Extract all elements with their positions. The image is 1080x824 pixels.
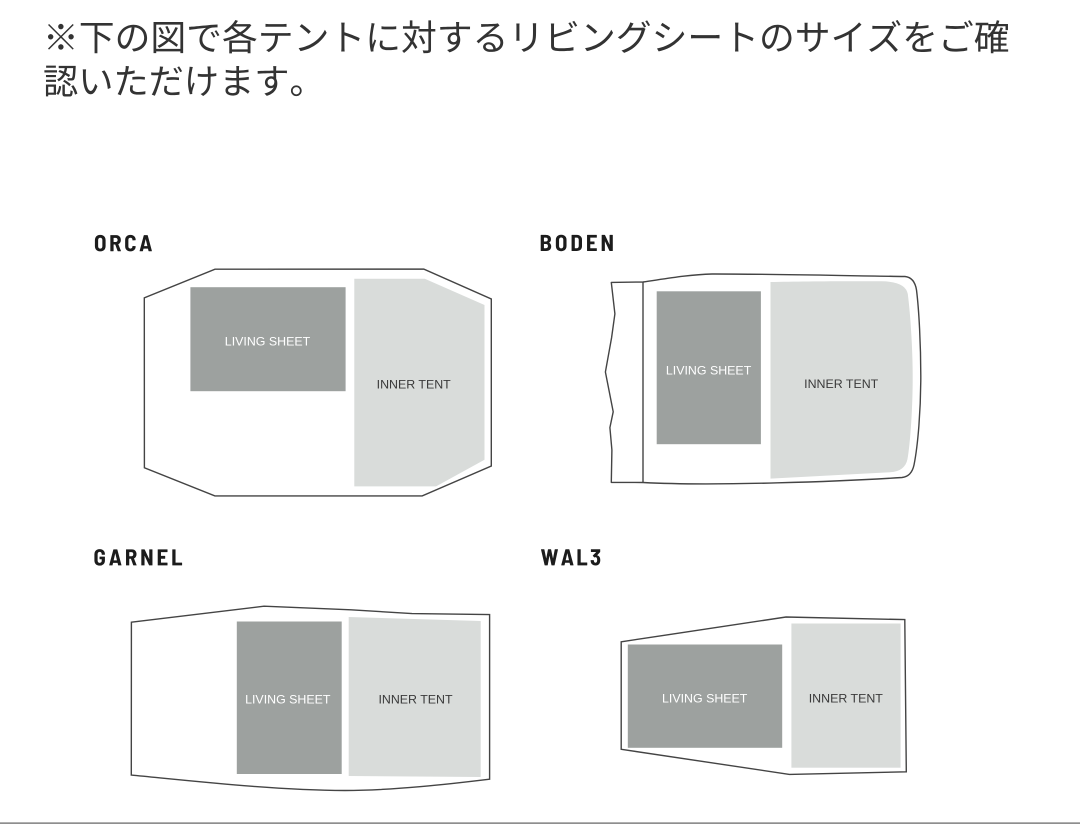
svg-text:LIVING SHEET: LIVING SHEET <box>225 334 311 348</box>
svg-text:INNER TENT: INNER TENT <box>809 692 884 706</box>
svg-text:LIVING SHEET: LIVING SHEET <box>666 364 752 378</box>
svg-text:INNER TENT: INNER TENT <box>377 377 452 391</box>
svg-text:LIVING SHEET: LIVING SHEET <box>245 692 331 706</box>
svg-text:LIVING SHEET: LIVING SHEET <box>662 692 748 706</box>
svg-text:INNER TENT: INNER TENT <box>804 377 879 391</box>
svg-text:INNER TENT: INNER TENT <box>378 692 453 706</box>
